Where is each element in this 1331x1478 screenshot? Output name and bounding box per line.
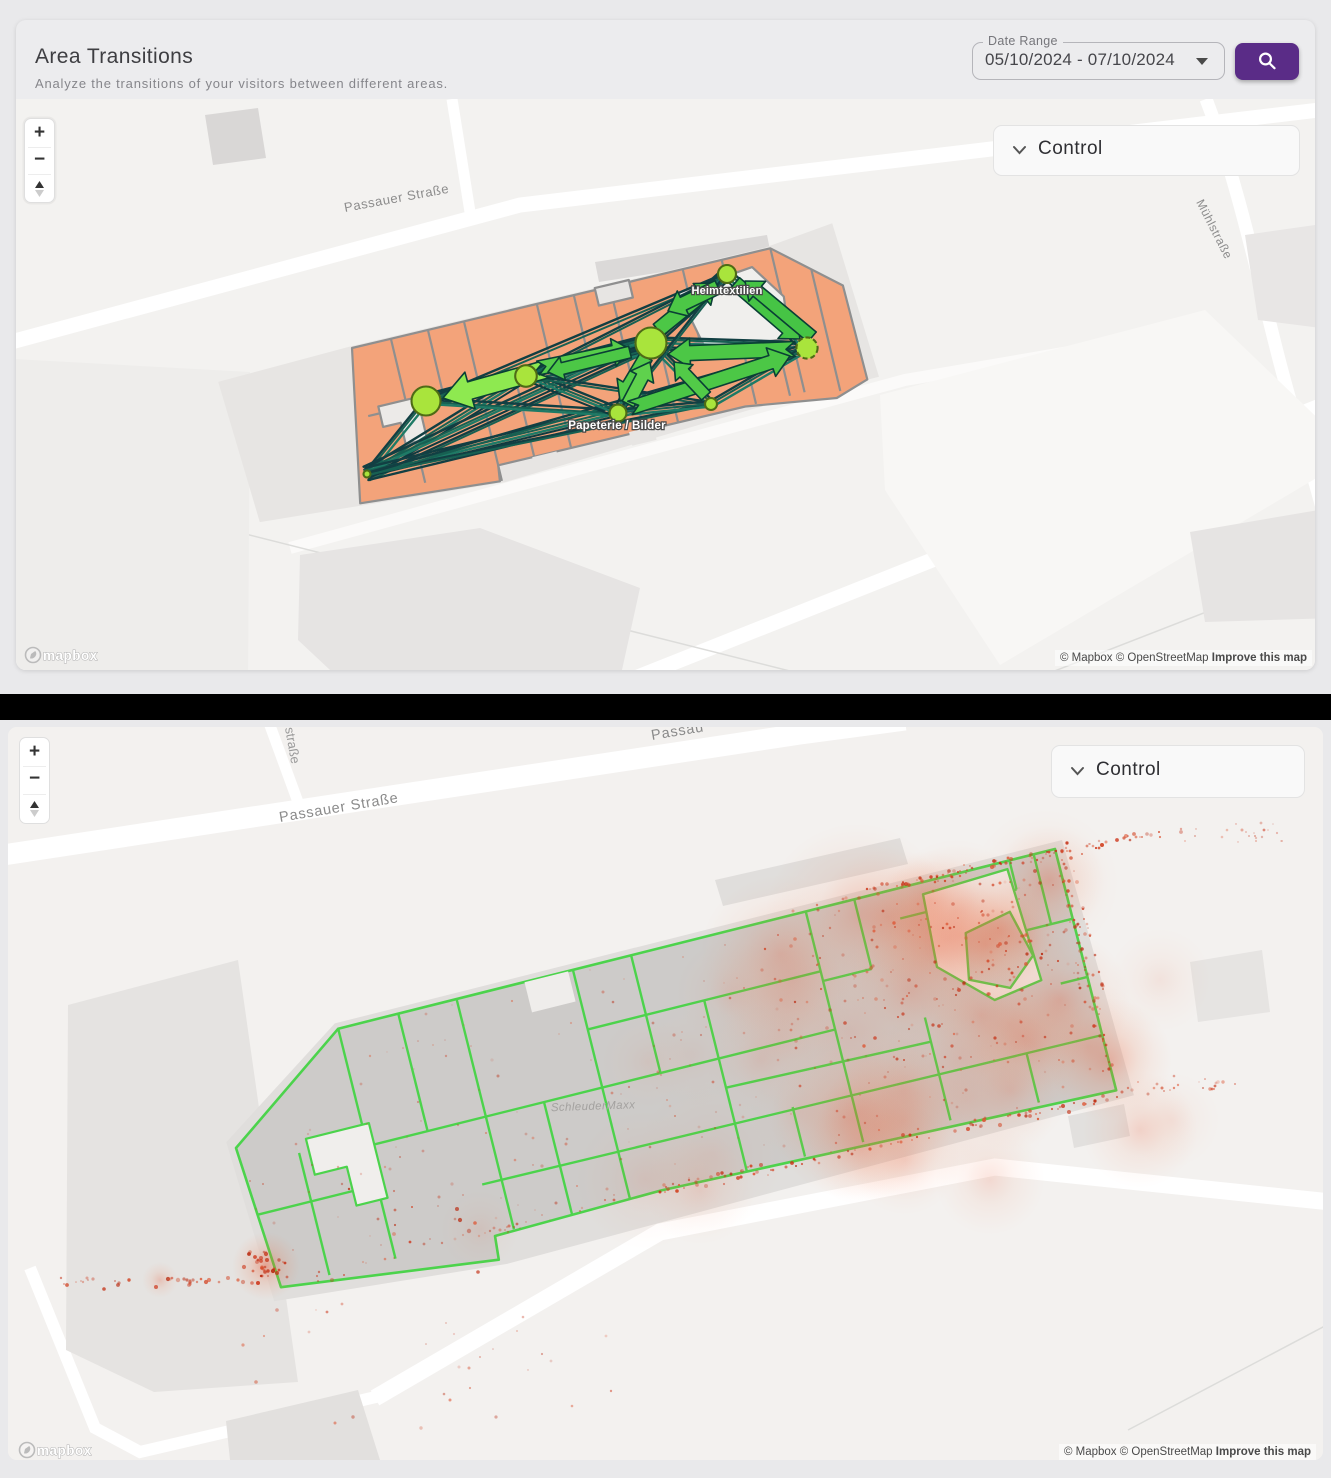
- svg-text:mapbox: mapbox: [43, 648, 98, 663]
- svg-text:mapbox: mapbox: [37, 1443, 92, 1458]
- svg-text:Heimtextilien: Heimtextilien: [691, 285, 762, 297]
- svg-text:Papeterie / Bilder: Papeterie / Bilder: [568, 420, 666, 432]
